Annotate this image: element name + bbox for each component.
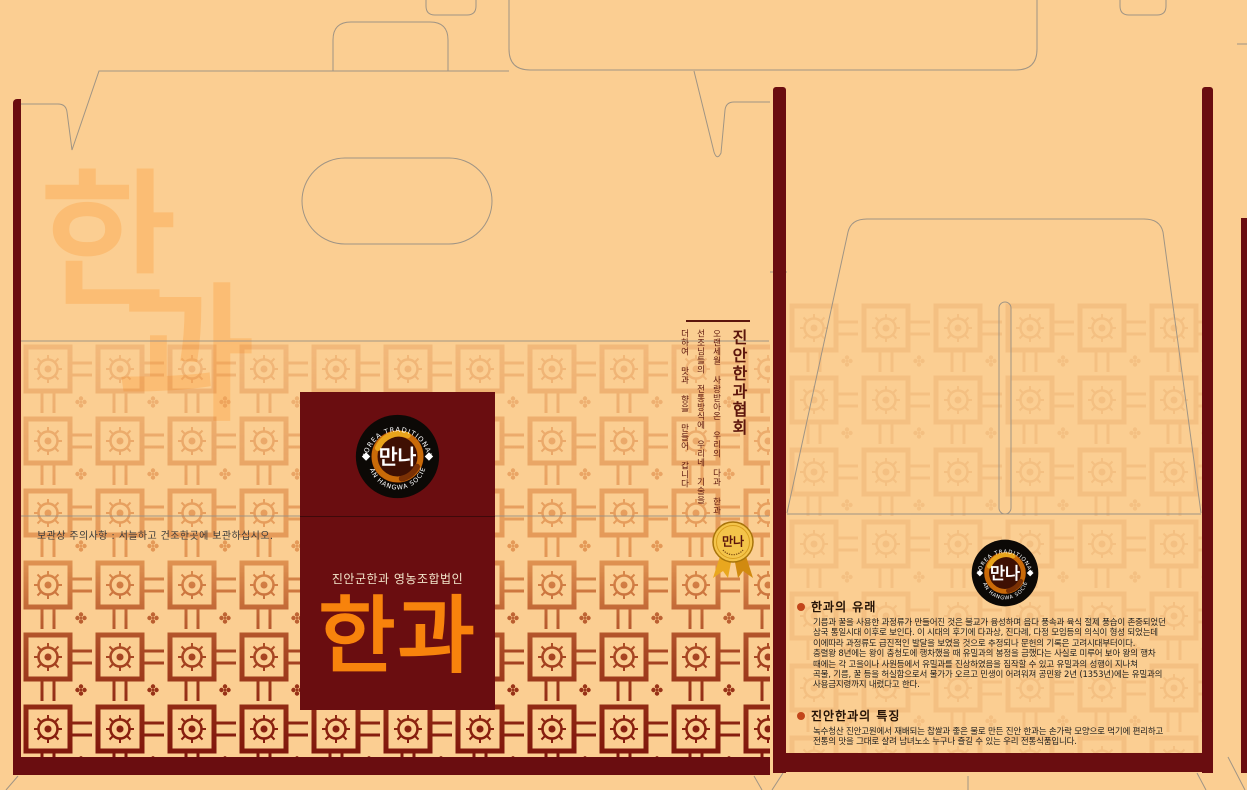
storage-notice: 보관상 주의사항 : 서늘하고 건조한곳에 보관하십시오. [37,527,273,542]
origin-section-body: 기름과 꿀을 사용한 과정류가 만들어진 것은 불교가 융성하며 음다 풍속과 … [813,618,1211,691]
origin-body-line: 기름과 꿀을 사용한 과정류가 만들어진 것은 불교가 융성하며 음다 풍속과 … [813,618,1211,628]
brand-plate-fold-line [300,516,495,517]
brand-subtitle: 진안군한과 영농조합법인 [300,570,495,587]
origin-body-line: 충렬왕 8년에는 왕이 충청도에 행차했을 때 유밀과의 봉정을 금했다는 사실… [813,649,1211,659]
origin-section-title: 한과의 유래 [811,598,876,615]
origin-body-line: 곡물, 기름, 꿀 등을 허실함으로서 물가가 오르고 민생이 어려워져 공민왕… [813,670,1211,680]
back-panel-bottom-bar [773,753,1213,772]
medal-label: 만나 [722,534,744,549]
brand-name: 한과 [300,588,495,685]
association-line-1: 오랜세월 사랑받아온 우리의 다과 한과 [710,329,722,519]
brand-plate: JINAN KOREA TRADITIONAL FOOD JINAN HANGW… [300,392,495,710]
association-title: 진안한과협회 [726,329,750,519]
manna-seal-logo: JINAN KOREA TRADITIONAL FOOD JINAN HANGW… [971,539,1039,607]
front-panel-left-edge-strip [13,99,21,775]
logo-center-text: 만나 [990,564,1020,583]
origin-body-line: 삼국 통일시대 이후로 보인다. 이 시대의 후기에 다과상, 진다례, 다정 … [813,628,1211,638]
bullet-icon [797,712,805,720]
feature-body-line: 녹수청산 진안고원에서 재배되는 찹쌀과 좋은 물로 만든 진안 한과는 손가락… [813,727,1211,737]
origin-body-line: 사용금지령까지 내렸다고 한다. [813,680,1211,690]
far-right-edge-sliver [1241,218,1247,773]
feature-body-line: 전통의 맛을 그대로 살려 남녀노소 누구나 즐길 수 있는 우리 전통식품입니… [813,737,1211,747]
medal-ribbon-icon: 만나 [709,521,757,581]
manna-seal-logo: JINAN KOREA TRADITIONAL FOOD JINAN HANGW… [355,414,440,499]
back-panel-left-border [773,87,786,773]
bullet-icon [797,603,805,611]
feature-section-body: 녹수청산 진안고원에서 재배되는 찹쌀과 좋은 물로 만든 진안 한과는 손가락… [813,727,1211,748]
feature-section-heading: 진안한과의 특징 [797,707,900,724]
logo-center-text: 만나 [379,445,417,469]
association-line-2: 선조님들의 전통방식에 우리네 기술을 [694,329,706,519]
origin-body-line: 이에따라 과정류도 급진적인 발달을 보였을 것으로 추정되나 문헌의 기록은 … [813,639,1211,649]
association-vertical-text: 진안한과협회 오랜세월 사랑받아온 우리의 다과 한과 선조님들의 전통방식에 … [686,320,750,519]
origin-body-line: 때에는 각 고을이나 사원등에서 유밀과를 진상하였음을 짐작할 수 있고 유밀… [813,660,1211,670]
origin-section-heading: 한과의 유래 [797,598,876,615]
box-dieline-design: 한 과 [0,0,1247,790]
front-panel-bottom-bar [13,757,770,775]
association-line-3: 더하여 맛과 향을 만들어 갑니다 [678,329,690,519]
feature-section-title: 진안한과의 특징 [811,707,900,724]
